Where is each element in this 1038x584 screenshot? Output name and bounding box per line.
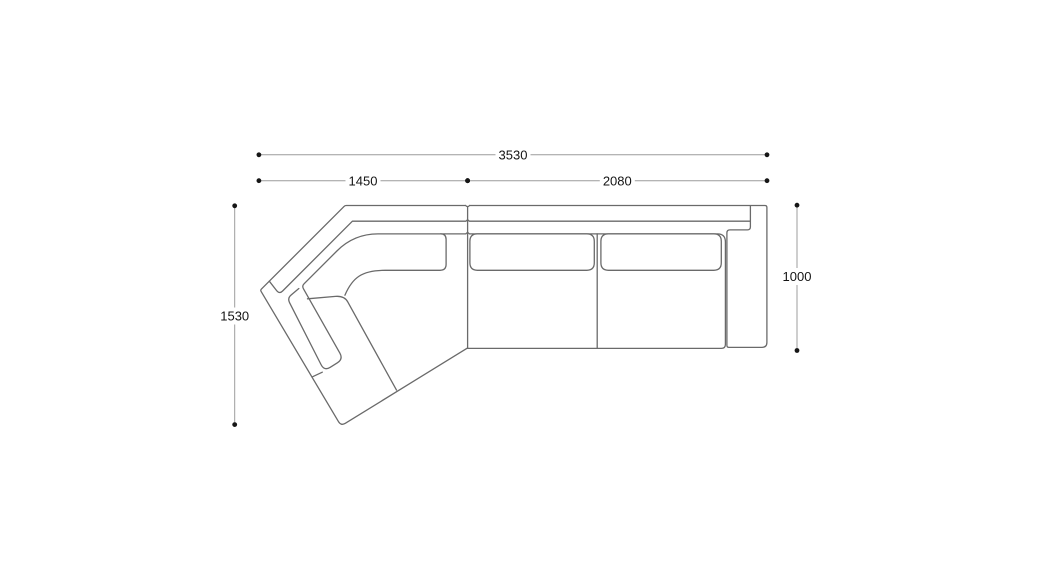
svg-text:3530: 3530 [499, 147, 528, 162]
svg-text:2080: 2080 [603, 173, 632, 188]
svg-text:1450: 1450 [349, 173, 378, 188]
svg-text:1000: 1000 [783, 269, 812, 284]
svg-text:1530: 1530 [220, 309, 249, 324]
